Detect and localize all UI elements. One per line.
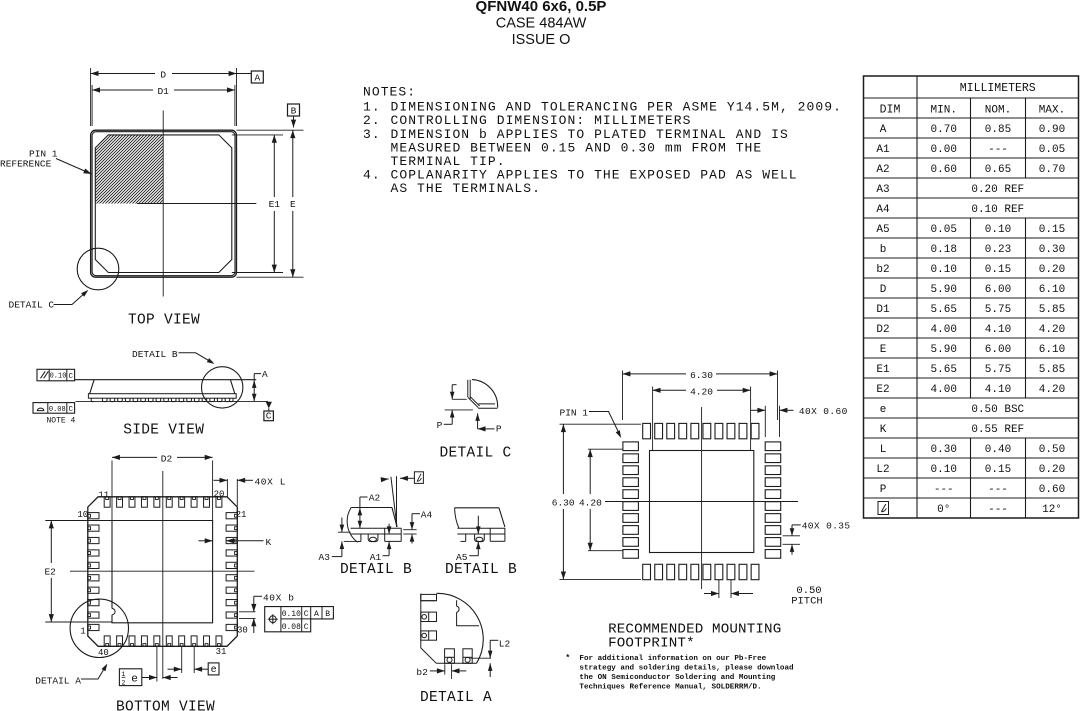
svg-text:21: 21 <box>236 510 247 520</box>
svg-text:D: D <box>880 284 887 296</box>
svg-text:4.20: 4.20 <box>690 386 713 397</box>
svg-text:*: * <box>565 654 570 663</box>
svg-text:L2: L2 <box>499 638 511 649</box>
svg-text:4.20: 4.20 <box>579 498 602 509</box>
svg-text:C: C <box>68 406 73 414</box>
svg-text:0.08: 0.08 <box>282 623 301 632</box>
svg-text:SIDE VIEW: SIDE VIEW <box>123 423 204 439</box>
svg-text:31: 31 <box>216 647 227 657</box>
svg-text:A2: A2 <box>369 493 381 504</box>
svg-text:6.00: 6.00 <box>985 344 1011 356</box>
svg-text:e: e <box>131 673 138 685</box>
svg-text:0.30: 0.30 <box>931 444 957 456</box>
svg-text:CASE 484AW: CASE 484AW <box>496 16 587 32</box>
svg-text:4.: 4. <box>363 168 381 183</box>
svg-text:0.50: 0.50 <box>1039 444 1065 456</box>
svg-text:0.15: 0.15 <box>985 264 1011 276</box>
svg-text:DETAIL B: DETAIL B <box>340 562 412 578</box>
svg-text:0.90: 0.90 <box>1039 124 1065 136</box>
svg-text:e: e <box>880 404 887 416</box>
svg-text:DETAIL A: DETAIL A <box>420 690 492 706</box>
svg-text:A1: A1 <box>876 144 890 156</box>
svg-text:E: E <box>880 344 887 356</box>
svg-text:b2: b2 <box>416 667 428 678</box>
svg-text:0.60: 0.60 <box>931 164 957 176</box>
svg-text:0.15: 0.15 <box>985 464 1011 476</box>
svg-text:6.30: 6.30 <box>690 370 713 381</box>
svg-text:11: 11 <box>98 490 109 500</box>
svg-text:ISSUE O: ISSUE O <box>512 32 571 48</box>
svg-text:3.: 3. <box>363 127 381 142</box>
svg-text:0.30: 0.30 <box>1039 244 1065 256</box>
svg-text:L: L <box>880 444 887 456</box>
svg-text:A2: A2 <box>876 164 889 176</box>
svg-text:D1: D1 <box>876 304 890 316</box>
svg-text:DETAIL B: DETAIL B <box>445 562 517 578</box>
svg-text:K: K <box>880 424 887 436</box>
svg-text:A: A <box>254 73 260 84</box>
svg-text:0.18: 0.18 <box>931 244 957 256</box>
svg-text:0.00: 0.00 <box>931 144 957 156</box>
svg-text:D2: D2 <box>161 453 173 464</box>
svg-text:A3: A3 <box>319 552 331 563</box>
svg-text:P: P <box>496 423 502 434</box>
svg-text:E2: E2 <box>44 567 56 578</box>
svg-text:A5: A5 <box>876 224 889 236</box>
svg-text:---: --- <box>934 484 954 496</box>
svg-text:4.20: 4.20 <box>1039 324 1065 336</box>
svg-text:---: --- <box>988 144 1008 156</box>
svg-text:4.00: 4.00 <box>931 384 957 396</box>
svg-text:5.85: 5.85 <box>1039 364 1065 376</box>
svg-text:TOP VIEW: TOP VIEW <box>128 313 200 329</box>
svg-text:REFERENCE: REFERENCE <box>0 159 52 170</box>
svg-text:PIN 1: PIN 1 <box>560 407 589 418</box>
svg-text:0.70: 0.70 <box>931 124 957 136</box>
svg-text:the ON Semiconductor Soldering: the ON Semiconductor Soldering and Mount… <box>579 674 775 682</box>
svg-text:---: --- <box>988 504 1008 516</box>
svg-text:strategy and soldering details: strategy and soldering details, please d… <box>579 665 794 673</box>
svg-text:5.90: 5.90 <box>931 344 957 356</box>
svg-text:C: C <box>68 373 73 381</box>
svg-text:0.15: 0.15 <box>1039 224 1065 236</box>
svg-text:0.20 REF: 0.20 REF <box>971 184 1024 196</box>
svg-text:10: 10 <box>77 510 88 520</box>
svg-text:A: A <box>880 124 887 136</box>
svg-text:12°: 12° <box>1042 504 1062 516</box>
svg-text:5.75: 5.75 <box>985 364 1011 376</box>
svg-text:DETAIL A: DETAIL A <box>35 675 81 686</box>
svg-text:4.20: 4.20 <box>1039 384 1065 396</box>
svg-text:AS THE TERMINALS.: AS THE TERMINALS. <box>391 181 541 196</box>
svg-text:B: B <box>325 610 330 619</box>
svg-text:---: --- <box>988 484 1008 496</box>
svg-text:0°: 0° <box>937 504 950 516</box>
svg-text:NOM.: NOM. <box>985 105 1011 117</box>
svg-text:E: E <box>290 199 296 210</box>
svg-text:MILLIMETERS: MILLIMETERS <box>960 82 1036 95</box>
svg-text:For additional information on: For additional information on our Pb-Fre… <box>579 655 766 663</box>
svg-text:C: C <box>304 610 309 619</box>
svg-text:5.85: 5.85 <box>1039 304 1065 316</box>
svg-text:0.20: 0.20 <box>1039 264 1065 276</box>
svg-text:Techniques Reference Manual, S: Techniques Reference Manual, SOLDERRM/D. <box>579 683 761 691</box>
svg-text:NOTE 4: NOTE 4 <box>47 416 76 425</box>
svg-text:0.23: 0.23 <box>985 244 1011 256</box>
svg-text:B: B <box>291 106 297 117</box>
svg-text:A: A <box>262 369 268 380</box>
svg-text:K: K <box>266 537 272 548</box>
svg-text:40X 0.60: 40X 0.60 <box>799 406 848 417</box>
svg-text:5.75: 5.75 <box>985 304 1011 316</box>
svg-text:0.60: 0.60 <box>1039 484 1065 496</box>
svg-text:D: D <box>160 70 166 81</box>
svg-text:0.50 BSC: 0.50 BSC <box>971 404 1024 416</box>
svg-text:0.55 REF: 0.55 REF <box>971 424 1024 436</box>
svg-text:PITCH: PITCH <box>791 595 823 607</box>
svg-text:D1: D1 <box>157 86 169 97</box>
svg-text:0.85: 0.85 <box>985 124 1011 136</box>
svg-text:0.65: 0.65 <box>985 164 1011 176</box>
svg-text:1: 1 <box>80 627 85 637</box>
svg-text:L2: L2 <box>876 464 889 476</box>
svg-text:P: P <box>880 484 887 496</box>
svg-text:5.65: 5.65 <box>931 304 957 316</box>
svg-text:4.10: 4.10 <box>985 324 1011 336</box>
svg-text:0.08: 0.08 <box>49 406 66 414</box>
svg-text:30: 30 <box>237 625 248 635</box>
svg-text:BOTTOM VIEW: BOTTOM VIEW <box>116 700 215 711</box>
svg-text:e: e <box>211 665 217 676</box>
svg-text:5.65: 5.65 <box>931 364 957 376</box>
svg-text:NOTES:: NOTES: <box>363 85 416 100</box>
svg-text:b2: b2 <box>876 264 889 276</box>
svg-text:E1: E1 <box>269 199 281 210</box>
svg-text:0.10: 0.10 <box>282 610 301 619</box>
svg-text:0.10: 0.10 <box>985 224 1011 236</box>
svg-text:5.90: 5.90 <box>931 284 957 296</box>
svg-text:0.05: 0.05 <box>931 224 957 236</box>
svg-text:0.20: 0.20 <box>1039 464 1065 476</box>
svg-text:DETAIL C: DETAIL C <box>439 446 511 462</box>
svg-text:C: C <box>266 411 272 422</box>
svg-text:DETAIL C: DETAIL C <box>9 300 55 311</box>
svg-text:6.30: 6.30 <box>552 498 575 509</box>
svg-text:E1: E1 <box>876 364 890 376</box>
svg-text:0.05: 0.05 <box>1039 144 1065 156</box>
svg-text:D2: D2 <box>876 324 889 336</box>
svg-text:6.10: 6.10 <box>1039 344 1065 356</box>
svg-text:0.40: 0.40 <box>985 444 1011 456</box>
svg-text:20: 20 <box>214 489 225 499</box>
svg-text:0.70: 0.70 <box>1039 164 1065 176</box>
svg-text:C: C <box>304 623 309 632</box>
svg-text:DETAIL B: DETAIL B <box>132 349 178 360</box>
svg-text:MAX.: MAX. <box>1039 105 1065 117</box>
svg-text:6.00: 6.00 <box>985 284 1011 296</box>
svg-text:A4: A4 <box>421 510 433 521</box>
svg-text:E2: E2 <box>876 384 889 396</box>
svg-text:6.10: 6.10 <box>1039 284 1065 296</box>
svg-text:0.10 REF: 0.10 REF <box>971 204 1024 216</box>
svg-text:b: b <box>880 244 887 256</box>
svg-text:0.10: 0.10 <box>931 464 957 476</box>
svg-text:40X 0.35: 40X 0.35 <box>802 521 851 532</box>
svg-text:DIM: DIM <box>880 104 901 117</box>
svg-text:4.00: 4.00 <box>931 324 957 336</box>
svg-text:A: A <box>314 610 319 619</box>
svg-text:40X b: 40X b <box>263 592 295 603</box>
svg-text:A3: A3 <box>876 184 889 196</box>
svg-text:MIN.: MIN. <box>931 105 957 117</box>
svg-text:2: 2 <box>122 680 126 687</box>
svg-text:P: P <box>437 420 443 431</box>
svg-text:QFNW40 6x6, 0.5P: QFNW40 6x6, 0.5P <box>476 0 607 15</box>
svg-text:0.10: 0.10 <box>931 264 957 276</box>
svg-text:A4: A4 <box>876 204 890 216</box>
svg-text:40X L: 40X L <box>255 476 287 487</box>
svg-text:FOOTPRINT*: FOOTPRINT* <box>608 636 695 652</box>
svg-text:4.10: 4.10 <box>985 384 1011 396</box>
svg-text:0.10: 0.10 <box>50 373 67 381</box>
